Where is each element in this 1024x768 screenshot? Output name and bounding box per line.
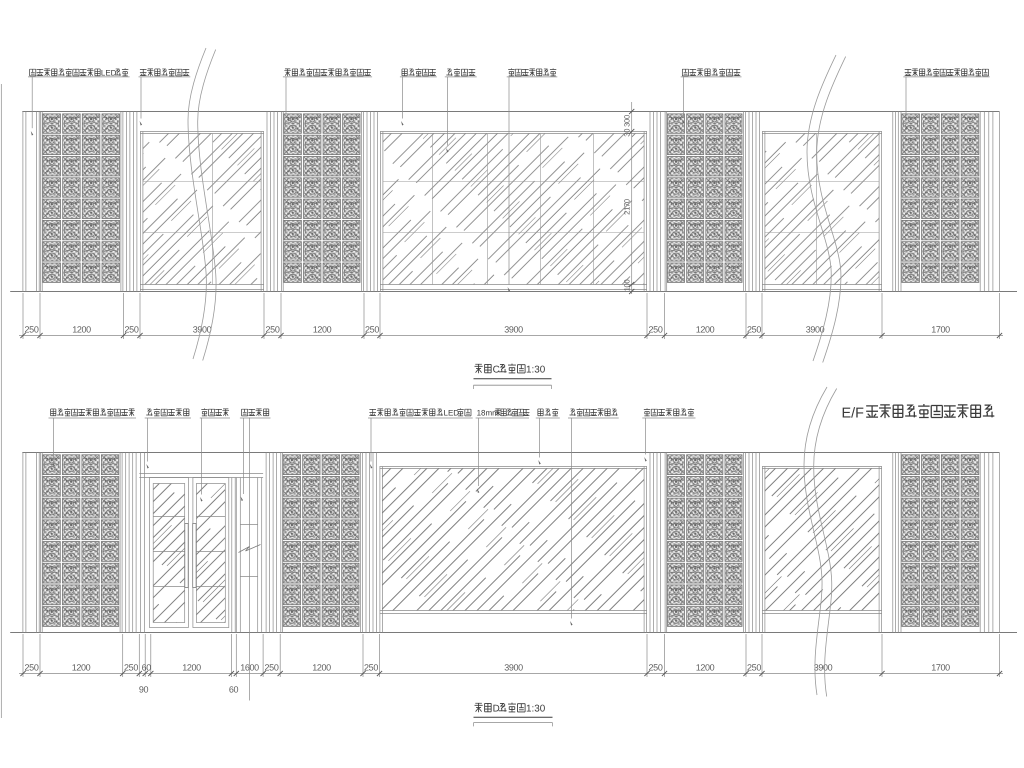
svg-text:D: D — [493, 704, 500, 715]
svg-text:250: 250 — [25, 662, 39, 672]
svg-text:250: 250 — [747, 662, 761, 672]
svg-text:250: 250 — [747, 324, 761, 334]
svg-text:1:30: 1:30 — [526, 704, 546, 715]
svg-text:1200: 1200 — [696, 662, 715, 672]
svg-text:250: 250 — [25, 324, 39, 334]
svg-text:1700: 1700 — [931, 662, 950, 672]
svg-text:LED: LED — [444, 408, 460, 417]
svg-text:1200: 1200 — [312, 662, 331, 672]
svg-text:250: 250 — [364, 662, 378, 672]
svg-text:250: 250 — [649, 662, 663, 672]
svg-text:C: C — [493, 365, 500, 376]
svg-text:250: 250 — [125, 324, 139, 334]
svg-text:1700: 1700 — [931, 324, 950, 334]
svg-text:60: 60 — [142, 662, 152, 672]
svg-text:1200: 1200 — [313, 324, 332, 334]
svg-text:1200: 1200 — [696, 324, 715, 334]
svg-text:60: 60 — [229, 685, 239, 695]
svg-text:1:30: 1:30 — [526, 365, 546, 376]
svg-text:1200: 1200 — [72, 662, 91, 672]
svg-text:3900: 3900 — [504, 662, 523, 672]
svg-text:100: 100 — [623, 280, 632, 292]
svg-text:90: 90 — [139, 685, 149, 695]
svg-text:250: 250 — [649, 324, 663, 334]
svg-text:30: 30 — [623, 129, 632, 137]
svg-text:3900: 3900 — [193, 324, 212, 334]
svg-text:1200: 1200 — [72, 324, 91, 334]
svg-text:3900: 3900 — [504, 324, 523, 334]
svg-text:3900: 3900 — [814, 662, 833, 672]
svg-text:250: 250 — [365, 324, 379, 334]
svg-text:2170: 2170 — [623, 199, 632, 215]
svg-text:18mm: 18mm — [477, 408, 500, 417]
svg-text:300: 300 — [623, 115, 632, 127]
svg-text:E/F: E/F — [842, 406, 865, 422]
svg-text:250: 250 — [124, 662, 138, 672]
svg-text:1200: 1200 — [182, 662, 201, 672]
svg-text:LED: LED — [101, 68, 117, 77]
svg-text:250: 250 — [265, 662, 279, 672]
svg-text:250: 250 — [266, 324, 280, 334]
